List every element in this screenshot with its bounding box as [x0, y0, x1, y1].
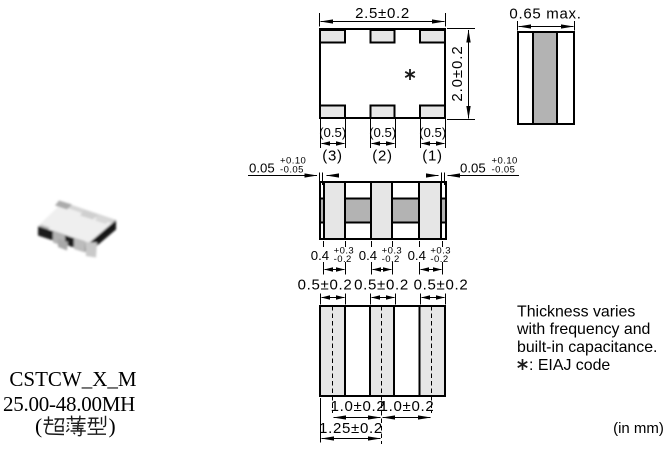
svg-text:-0.2: -0.2	[430, 254, 448, 265]
svg-text:0.05: 0.05	[249, 161, 275, 176]
svg-text:0.4: 0.4	[359, 248, 377, 263]
svg-text:-0.2: -0.2	[334, 254, 352, 265]
svg-text:1.0±0.2: 1.0±0.2	[331, 398, 386, 415]
svg-text:1.25±0.2: 1.25±0.2	[319, 420, 383, 437]
svg-text:(0.5): (0.5)	[369, 125, 396, 140]
svg-text:(0.5): (0.5)	[419, 125, 446, 140]
svg-text:-0.05: -0.05	[492, 164, 516, 175]
svg-text:0.5±0.2: 0.5±0.2	[354, 277, 409, 294]
svg-text:(2): (2)	[372, 148, 392, 165]
svg-text:: EIAJ code: : EIAJ code	[529, 357, 610, 374]
svg-text:2.0±0.2: 2.0±0.2	[449, 45, 466, 101]
svg-text:1.0±0.2: 1.0±0.2	[380, 398, 435, 415]
svg-text:25.00-48.00MH: 25.00-48.00MH	[3, 392, 135, 416]
svg-text:0.4: 0.4	[408, 248, 426, 263]
svg-text:-0.05: -0.05	[280, 164, 304, 175]
svg-text:CSTCW_X_M: CSTCW_X_M	[9, 367, 137, 391]
svg-text:with frequency and: with frequency and	[516, 321, 650, 338]
svg-text:(in mm): (in mm)	[613, 420, 664, 437]
svg-text:(1): (1)	[422, 148, 442, 165]
svg-text:): )	[109, 414, 116, 438]
svg-text:(3): (3)	[322, 148, 342, 165]
svg-text:(: (	[35, 414, 42, 438]
svg-text:built-in capacitance.: built-in capacitance.	[517, 339, 657, 356]
svg-text:(0.5): (0.5)	[319, 125, 346, 140]
svg-text:0.5±0.2: 0.5±0.2	[298, 277, 353, 294]
svg-text:0.65 max.: 0.65 max.	[509, 6, 581, 23]
svg-text:-0.2: -0.2	[382, 254, 400, 265]
svg-text:Thickness varies: Thickness varies	[517, 303, 635, 320]
svg-text:0.05: 0.05	[460, 161, 486, 176]
svg-text:0.4: 0.4	[311, 248, 329, 263]
svg-text:0.5±0.2: 0.5±0.2	[414, 277, 469, 294]
svg-text:2.5±0.2: 2.5±0.2	[355, 5, 410, 22]
